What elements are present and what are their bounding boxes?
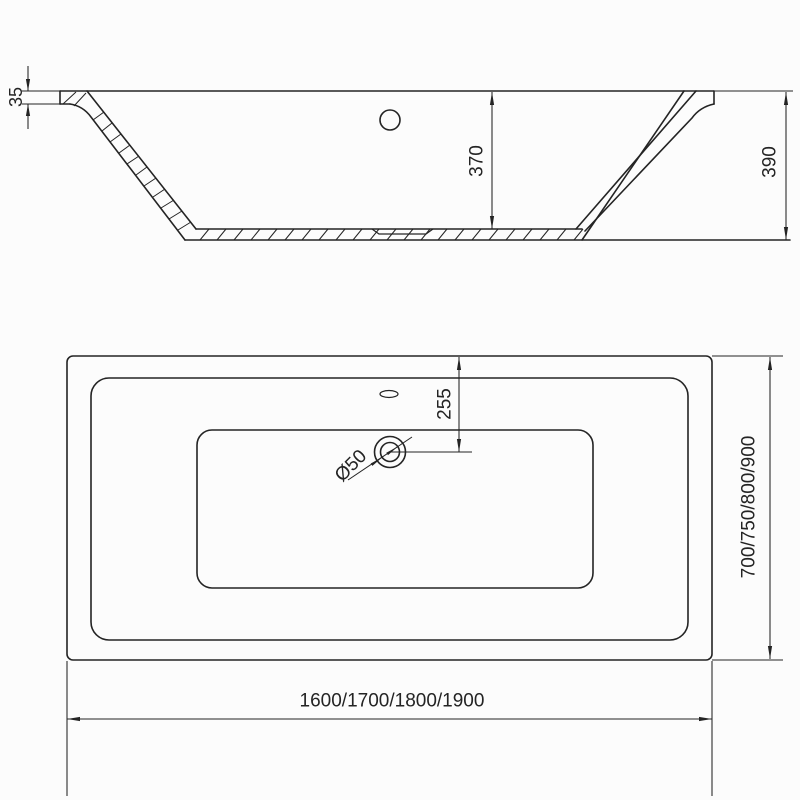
dim-390-arrow-bottom xyxy=(784,227,788,240)
dim-length-arrow-right xyxy=(699,717,712,721)
dim-width-options-label: 700/750/800/900 xyxy=(739,436,760,579)
dim-length-arrow-left xyxy=(67,717,80,721)
side-overflow-hole xyxy=(380,110,400,130)
dim-width-arrow-top xyxy=(768,357,772,370)
dim-length-options-label: 1600/1700/1800/1900 xyxy=(300,691,485,712)
dim-390-lines xyxy=(714,91,793,240)
plan-outer-edge xyxy=(67,356,712,660)
plan-view xyxy=(67,356,712,660)
side-right-wall-inner xyxy=(576,91,696,229)
dim-35-lines xyxy=(22,66,60,129)
plan-overflow-hole xyxy=(380,391,398,398)
dim-inner-depth-label: 370 xyxy=(467,145,488,177)
dim-255-lines xyxy=(390,357,472,452)
dim-35-arrow-top xyxy=(26,79,30,91)
side-view xyxy=(60,91,790,240)
floor-hatch xyxy=(200,229,583,240)
dim-370-arrow-bottom xyxy=(490,216,494,229)
dim-width-arrow-bottom xyxy=(768,646,772,659)
dim-255-arrow-top xyxy=(457,357,461,370)
dim-35-arrow-bottom xyxy=(26,104,30,116)
side-left-wall-inner xyxy=(87,91,196,229)
plan-rim-inner-edge xyxy=(91,378,688,640)
bathtub-dimension-drawing: 35 370 390 255 Ø50 700/750/800 xyxy=(0,0,800,800)
side-left-wall-outer xyxy=(70,104,185,240)
side-right-wall-outer xyxy=(585,104,714,231)
side-dimensions: 35 370 390 xyxy=(6,66,793,240)
dim-370-arrow-top xyxy=(490,92,494,105)
dim-390-arrow-top xyxy=(784,92,788,105)
dim-drain-dia-arrow-2 xyxy=(386,447,398,456)
dim-rim-thickness-label: 35 xyxy=(6,87,26,107)
left-wall-hatch xyxy=(63,92,191,230)
technical-drawing-canvas: 35 370 390 255 Ø50 700/750/800 xyxy=(0,0,800,800)
dim-drain-offset-label: 255 xyxy=(435,388,456,420)
dim-length-lines xyxy=(67,661,712,796)
dim-drain-diameter-label: Ø50 xyxy=(331,446,371,486)
plan-dimensions: 255 Ø50 700/750/800/900 1600/1700/1800/1… xyxy=(67,356,783,796)
dim-total-height-label: 390 xyxy=(760,146,781,178)
dim-255-arrow-bottom xyxy=(457,439,461,452)
side-right-wall-mid xyxy=(582,91,684,240)
plan-floor-edge xyxy=(197,430,593,588)
